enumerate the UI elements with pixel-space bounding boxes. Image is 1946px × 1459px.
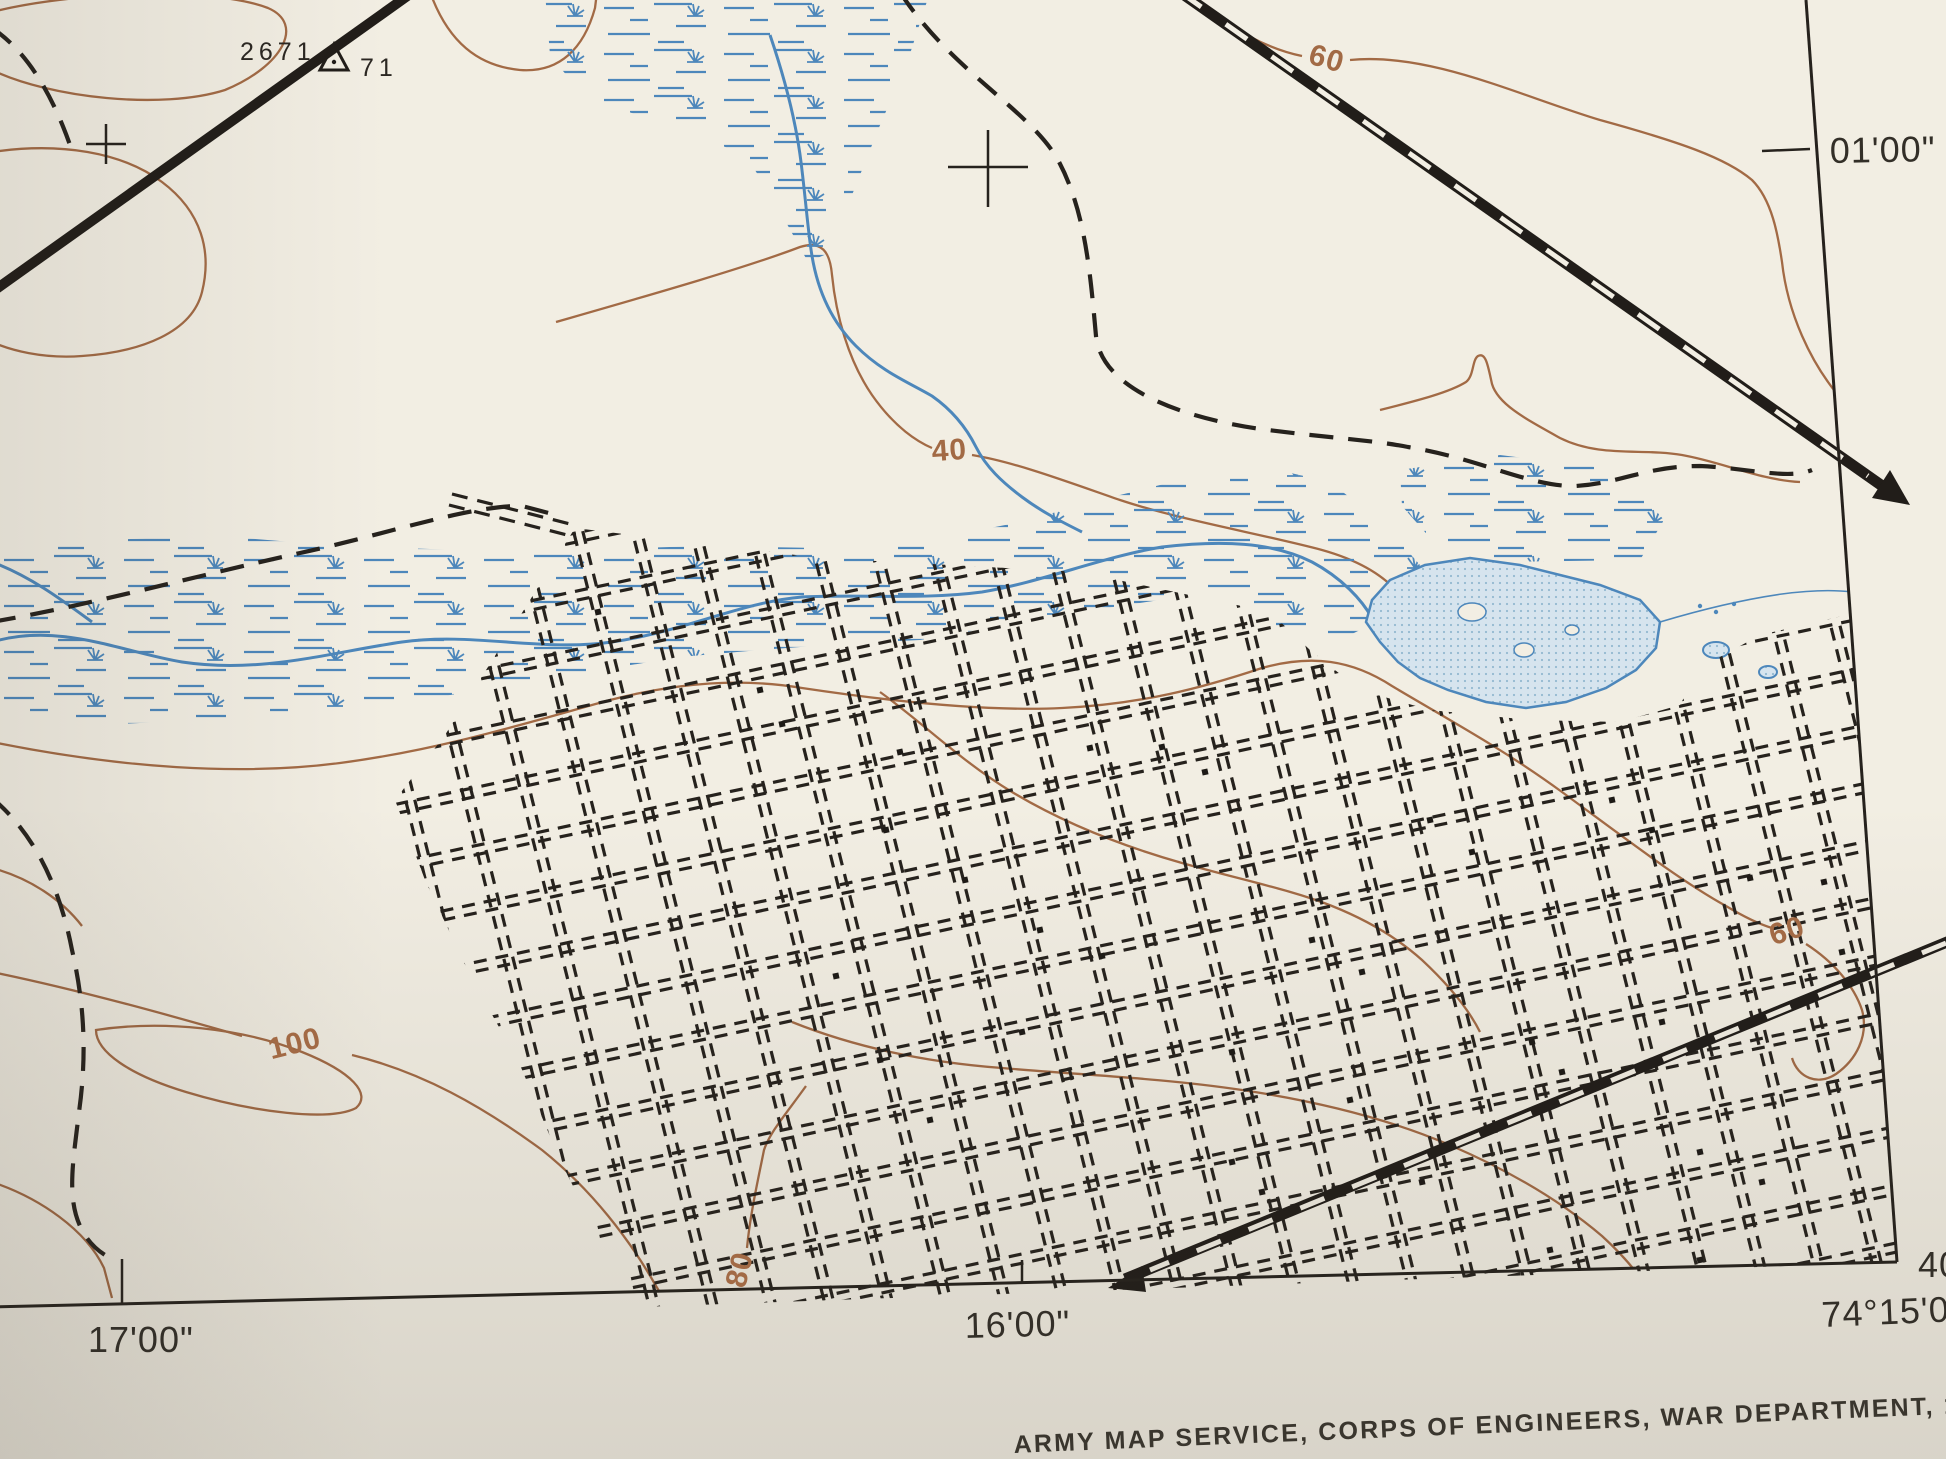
scanned-topo-map: 2671 71 60 40 100 80 60 01'00" 17'00" 16… — [0, 0, 1946, 1459]
building-dot — [882, 826, 889, 833]
building-dot — [1696, 1148, 1703, 1155]
building-dot — [1358, 968, 1365, 975]
building-dot — [1426, 816, 1433, 823]
contour-label-40: 40 — [931, 433, 969, 468]
building-dot — [1696, 1256, 1703, 1263]
building-dot — [1648, 826, 1655, 833]
building-dot — [1608, 796, 1615, 803]
pond — [1759, 666, 1777, 678]
building-dot — [1758, 1178, 1765, 1185]
building-dot — [1546, 1246, 1553, 1253]
building-dot — [1658, 1018, 1665, 1025]
paper-background — [0, 0, 1946, 1459]
lake-island — [1514, 643, 1534, 657]
longitude-minute-bottom-left: 17'00" — [88, 1319, 194, 1360]
building-dot — [1036, 926, 1043, 933]
building-dot — [1468, 848, 1475, 855]
longitude-corner-label: 74°15'00" — [1821, 1287, 1946, 1335]
building-dot — [1528, 1038, 1535, 1045]
longitude-minute-bottom-center: 16'00" — [964, 1302, 1071, 1346]
longitude-minute-top-right: 01'00" — [1829, 128, 1935, 171]
building-dot — [1746, 874, 1753, 881]
lake-island — [1458, 603, 1486, 621]
building-dot — [1228, 1048, 1235, 1055]
building-dot — [926, 1116, 933, 1123]
building-dot — [1558, 1068, 1565, 1075]
building-dot — [594, 608, 601, 615]
building-dot — [1308, 936, 1315, 943]
building-dot — [961, 876, 968, 883]
building-dot — [1201, 768, 1208, 775]
building-dot — [778, 720, 785, 727]
building-dot — [756, 686, 763, 693]
building-dot — [1418, 1178, 1425, 1185]
building-dot — [1018, 1028, 1025, 1035]
building-dot — [896, 748, 903, 755]
pond — [1703, 642, 1729, 658]
building-dot — [1258, 1188, 1265, 1195]
building-dot — [1158, 743, 1165, 750]
building-dot — [1346, 1096, 1353, 1103]
building-dot — [1228, 1158, 1235, 1165]
building-dot — [1838, 948, 1845, 955]
lake-island — [1565, 625, 1579, 635]
building-dot — [876, 1056, 883, 1063]
latitude-corner-label: 40 — [1918, 1244, 1946, 1285]
topographic-map-canvas: 2671 71 60 40 100 80 60 01'00" 17'00" 16… — [0, 0, 1946, 1459]
station-elevation-label: 71 — [360, 54, 398, 82]
building-dot — [1820, 878, 1827, 885]
station-id-label: 2671 — [240, 38, 316, 66]
building-dot — [1086, 744, 1093, 751]
building-dot — [1098, 952, 1105, 959]
building-dot — [832, 972, 839, 979]
